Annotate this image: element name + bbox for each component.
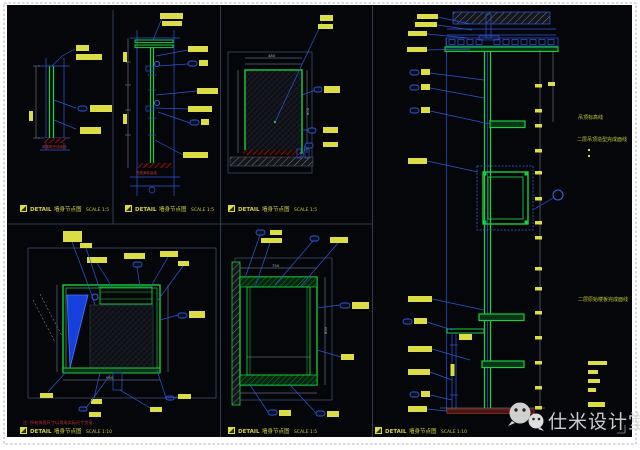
site-note-text: 注: 所有饰面尺寸以现场实际尺寸为准. [23,419,94,426]
title-scale-label: SCALE 1:5 [294,429,317,435]
shelf-3 [482,361,524,368]
title-drawing-name: 墙身节点图 [54,205,82,213]
bottom-green-band [240,375,317,385]
dim-frame-width: 750 [272,263,280,268]
title-drawing-name: 墙身节点图 [159,205,187,213]
floor-hatch [44,138,66,143]
dim-height: 600 [305,107,310,115]
title-detail-label: DETAIL [30,207,52,213]
dim-width: 480 [268,53,276,58]
floor-note-text: 原建筑完成面线 [42,144,67,149]
shelf-2 [479,314,524,321]
title-scale-label: SCALE 1:10 [86,429,112,435]
ceiling-level-note: 吊顶标高线 [578,114,603,121]
title-scale-label: SCALE 1:10 [441,429,467,435]
title-detail-label: DETAIL [238,207,260,213]
cad-canvas: 原建筑完成面线 [0,0,640,450]
title-drawing-name: 墙身节点图 [409,427,437,435]
panel-hatch-block [90,305,153,368]
shelf-1 [490,121,525,128]
title-scale-label: SCALE 1:5 [294,207,317,213]
title-detail-label: DETAIL [135,207,157,213]
slab-line-note: 二层原始楼板完成面线 [578,296,628,303]
title-detail-label: DETAIL [30,429,52,435]
title-detail-label: DETAIL [385,429,407,435]
top-green-band [240,277,317,287]
floor-note-text: 完成面标高线 [136,170,157,175]
title-scale-label: SCALE 1:5 [86,207,109,213]
wall-strip [232,262,240,405]
base-red-strip [243,150,300,155]
base-hatch [230,157,313,166]
floor-hatch [138,163,172,168]
title-scale-label: SCALE 1:5 [191,207,214,213]
dim-frame-height: 850 [323,326,328,334]
watermark-text: 仕米设计堂 [548,411,640,433]
ceiling-slab-hatch [453,12,550,24]
title-drawing-name: 墙身节点图 [262,205,290,213]
ceiling-finish-note: 二层吊顶造型完成面线 [577,136,627,143]
title-drawing-name: 墙身节点图 [262,427,290,435]
cad-drawing-page: 原建筑完成面线 [0,0,640,450]
bottom-green-band [63,368,160,373]
title-detail-label: DETAIL [238,429,260,435]
title-drawing-name: 墙身节点图 [54,427,82,435]
